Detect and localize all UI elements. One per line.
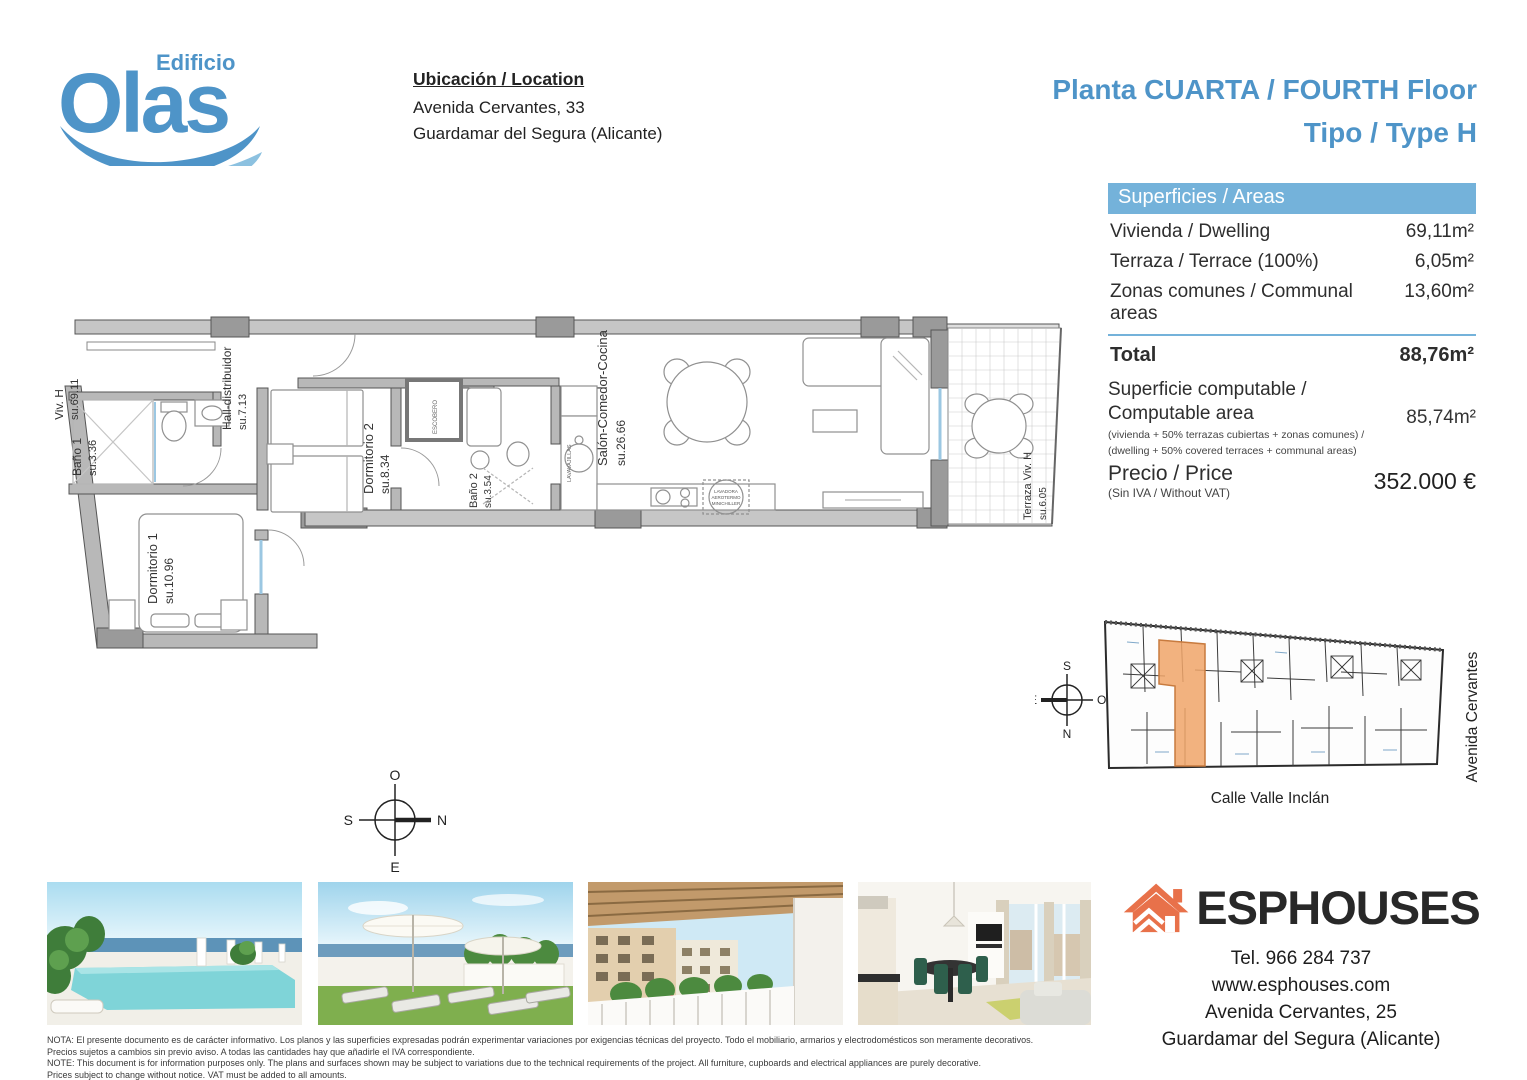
room-label: Baño 1 [70, 438, 84, 476]
compass-right: N [437, 812, 447, 828]
street-label-bottom: Calle Valle Inclán [1140, 790, 1400, 808]
compass-icon: O S N E [344, 767, 447, 873]
edificio-olas-logo: Edificio Olas [48, 26, 288, 166]
compass-left: S [344, 812, 353, 828]
house-icon [1122, 876, 1192, 938]
compass-bottom: N [1063, 727, 1072, 741]
computable-value: 85,74m² [1406, 407, 1476, 429]
floor-plan: Viv. H su.69.11 Baño 1 su.3.36 Hall-dist… [55, 298, 1070, 873]
room-area: su.10.96 [162, 558, 176, 604]
agency-logo: ESPHOUSES [1105, 876, 1497, 938]
location-block: Ubicación / Location Avenida Cervantes, … [413, 66, 753, 148]
dishwasher-label: LAVAVAJILLAS [567, 444, 573, 482]
agency-phone: Tel. 966 284 737 [1105, 946, 1497, 973]
table-row: Zonas comunes / Communal areas 13,60m² [1108, 274, 1476, 326]
areas-header: Superficies / Areas [1108, 183, 1476, 214]
utility-label: LAVADORA [714, 489, 738, 494]
agency-block: ESPHOUSES Tel. 966 284 737 www.esphouses… [1105, 876, 1497, 1054]
computable-label1: Superficie computable / [1108, 378, 1364, 402]
room-area: su.6.05 [1038, 487, 1049, 520]
total-row: Total 88,76m² [1108, 334, 1476, 368]
compass-left: E [1035, 693, 1037, 707]
photo-interior-living [858, 882, 1091, 1025]
location-address1: Avenida Cervantes, 33 [413, 95, 753, 121]
table-row: Vivienda / Dwelling 69,11m² [1108, 214, 1476, 244]
building-footprint [1105, 622, 1443, 768]
computable-row: Superficie computable / Computable area … [1108, 378, 1476, 458]
room-area: su.69.11 [69, 379, 81, 420]
computable-note1: (vivienda + 50% terrazas cubiertas + zon… [1108, 429, 1364, 442]
area-value: 6,05m² [1415, 251, 1474, 273]
photo-rooftop-pool [47, 882, 302, 1025]
price-value: 352.000 € [1374, 468, 1476, 495]
room-area: su.26.66 [614, 420, 628, 466]
price-label: Precio / Price [1108, 462, 1233, 486]
price-note: (Sin IVA / Without VAT) [1108, 486, 1233, 500]
room-label: Terraza Viv. H [1022, 452, 1034, 520]
area-value: 13,60m² [1404, 281, 1474, 325]
area-value: 69,11m² [1406, 221, 1474, 243]
disclaimer: NOTA: El presente documento es de caráct… [47, 1035, 1227, 1080]
room-label: Dormitorio 2 [361, 423, 376, 494]
disclaimer-line: Precios sujetos a cambios sin previo avi… [47, 1047, 1227, 1059]
title-line1: Planta CUARTA / FOURTH Floor [957, 68, 1477, 111]
room-area: su.7.13 [237, 394, 249, 430]
computable-label2: Computable area [1108, 402, 1364, 426]
agency-name: ESPHOUSES [1196, 880, 1480, 935]
street-label-right: Avenida Cervantes [1464, 642, 1482, 792]
logo-name-text: Olas [58, 56, 228, 150]
agency-website: www.esphouses.com [1105, 973, 1497, 1000]
title-line2: Tipo / Type H [957, 111, 1477, 154]
compass-bottom: E [390, 859, 399, 873]
total-label: Total [1110, 344, 1156, 367]
disclaimer-line: NOTA: El presente documento es de caráct… [47, 1035, 1227, 1047]
location-heading: Ubicación / Location [413, 66, 753, 93]
area-label: Terraza / Terrace (100%) [1110, 251, 1319, 273]
location-address2: Guardamar del Segura (Alicante) [413, 121, 753, 147]
room-label: Salón-Comedor-Cocina [595, 329, 610, 466]
room-label: Hall-distribuidor [220, 347, 234, 430]
page-title: Planta CUARTA / FOURTH Floor Tipo / Type… [957, 68, 1477, 155]
room-label: Dormitorio 1 [145, 533, 160, 604]
room-area: su.3.54 [483, 475, 494, 508]
area-label: Vivienda / Dwelling [1110, 221, 1270, 243]
photo-rooftop-terrace [318, 882, 573, 1025]
areas-table: Superficies / Areas Vivienda / Dwelling … [1108, 183, 1476, 458]
compass-top: S [1063, 659, 1071, 673]
room-label: Viv. H [55, 389, 66, 420]
total-value: 88,76m² [1400, 344, 1475, 367]
utility-label: MINICHILLER [712, 501, 741, 506]
disclaimer-line: Prices subject to change without notice.… [47, 1070, 1227, 1080]
room-area: su.8.34 [378, 454, 392, 494]
brochure-page: Edificio Olas Ubicación / Location Aveni… [0, 0, 1527, 1080]
area-label: Zonas comunes / Communal areas [1110, 281, 1404, 325]
site-plan: S E O N [1035, 612, 1485, 812]
agency-address1: Avenida Cervantes, 25 [1105, 1000, 1497, 1027]
disclaimer-line: NOTE: This document is for information p… [47, 1058, 1227, 1070]
compass-top: O [390, 767, 401, 783]
table-row: Terraza / Terrace (100%) 6,05m² [1108, 244, 1476, 274]
siteplan-compass-icon: S E O N [1035, 659, 1106, 741]
closet-label: ESCOBERO [433, 400, 439, 434]
computable-note2: (dwelling + 50% covered terraces + commu… [1108, 445, 1364, 458]
price-row: Precio / Price (Sin IVA / Without VAT) 3… [1108, 462, 1476, 500]
room-area: su.3.36 [87, 440, 99, 476]
photo-balcony-view [588, 882, 843, 1025]
compass-right: O [1097, 693, 1106, 707]
utility-label: AEROTERMO [711, 495, 741, 500]
room-label: Baño 2 [468, 473, 480, 508]
